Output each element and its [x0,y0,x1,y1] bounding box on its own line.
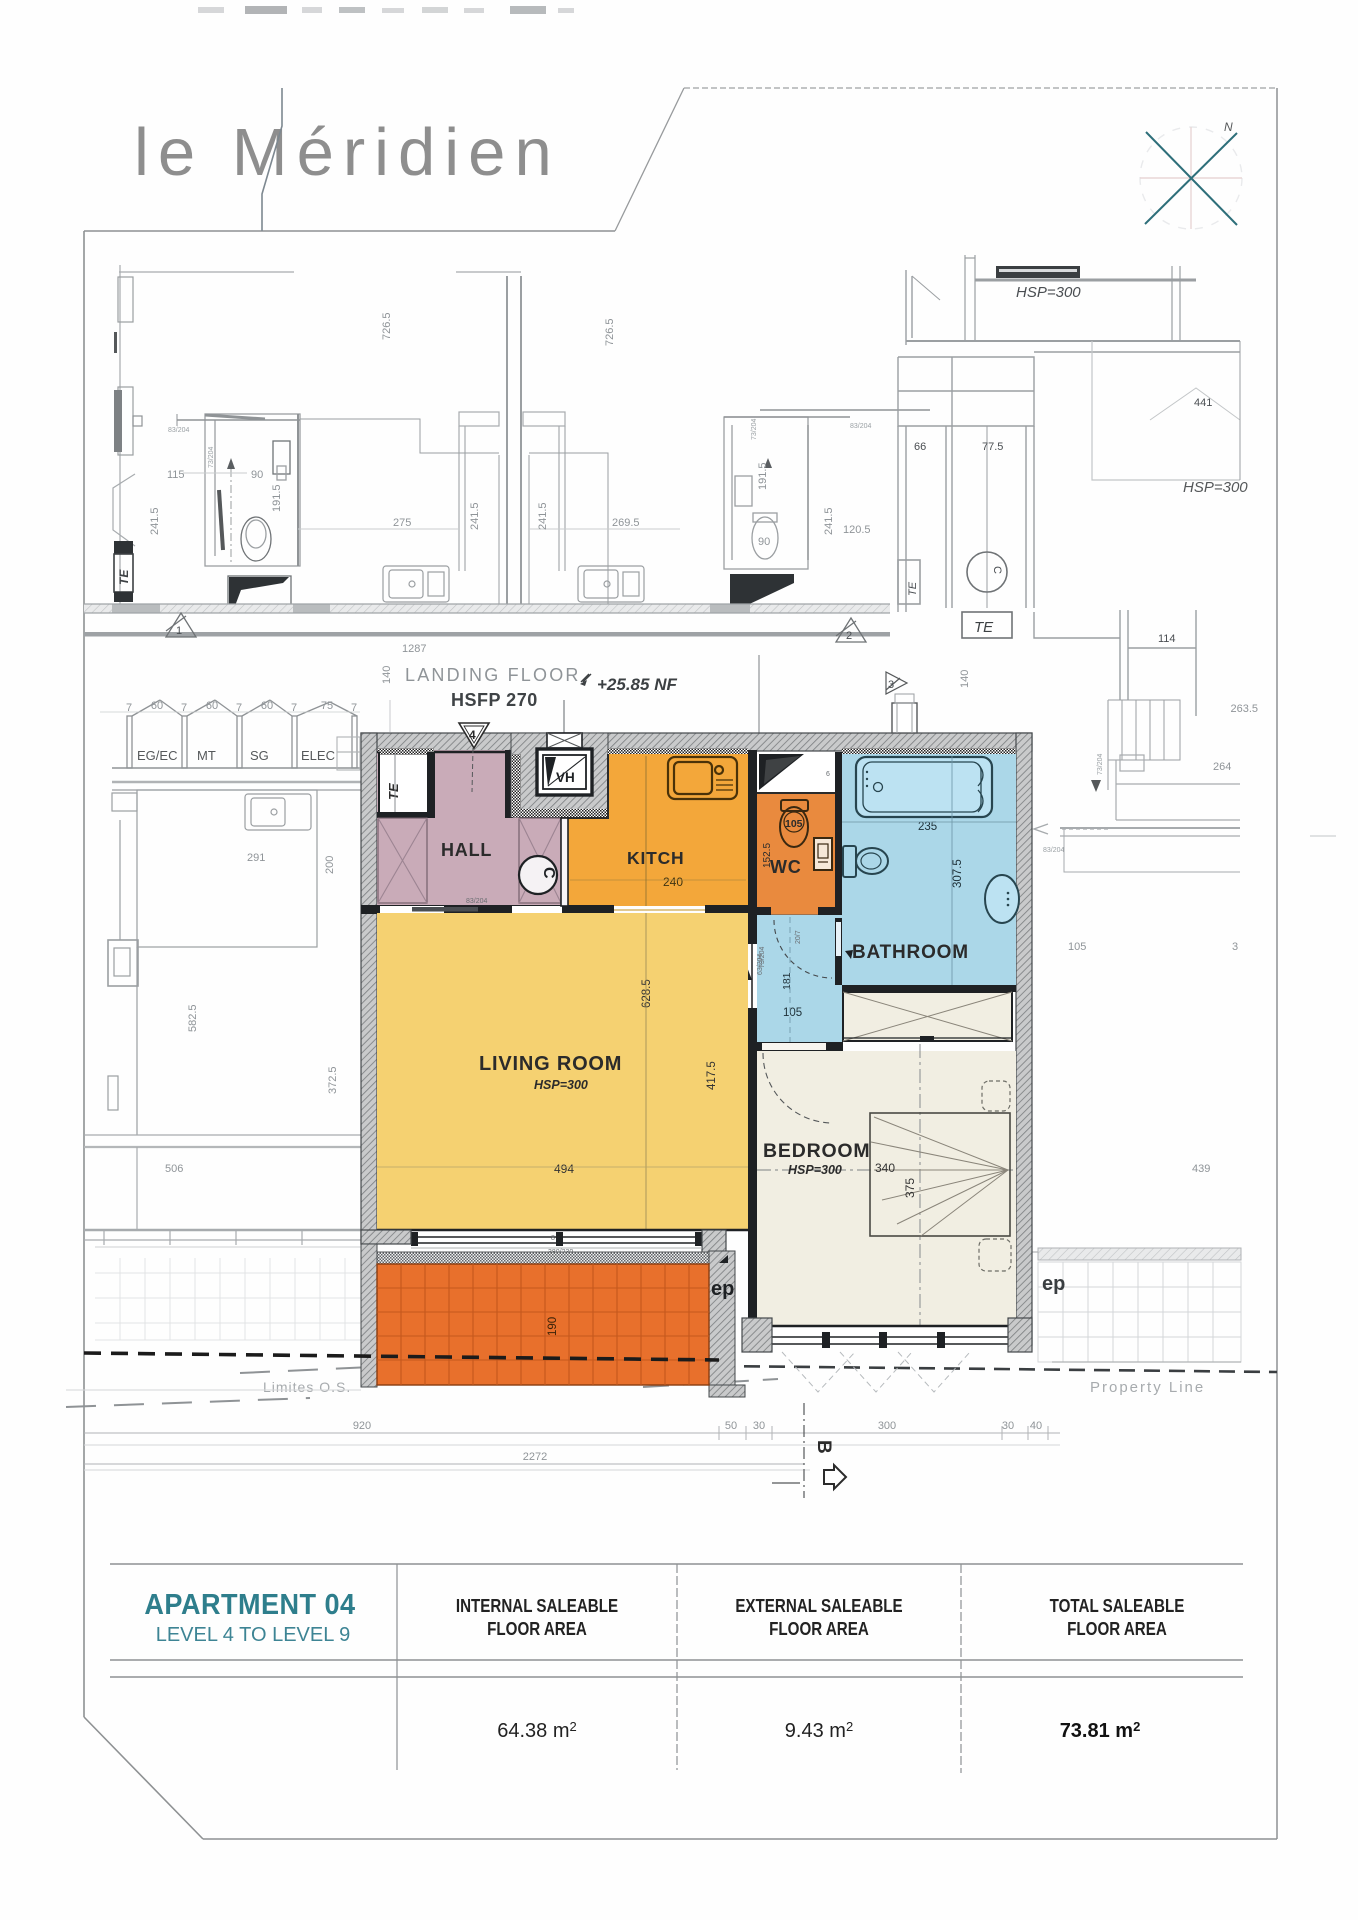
svg-text:181: 181 [781,972,793,990]
svg-text:HSFP 270: HSFP 270 [451,690,538,710]
svg-text:ep: ep [1042,1273,1065,1295]
svg-text:HALL: HALL [441,840,492,860]
svg-text:506: 506 [165,1163,183,1175]
svg-text:TE: TE [974,619,994,636]
svg-text:TE: TE [386,783,401,800]
svg-text:83/204: 83/204 [168,427,190,434]
svg-text:140: 140 [959,670,971,688]
svg-text:N: N [1224,120,1233,134]
svg-text:20/7: 20/7 [795,930,802,944]
svg-text:191.5: 191.5 [757,462,769,490]
svg-text:TE: TE [907,581,919,596]
svg-text:73/204: 73/204 [1097,753,1104,775]
svg-text:140: 140 [381,666,393,684]
svg-text:Limites O.S.: Limites O.S. [263,1379,351,1395]
svg-text:264: 264 [1213,761,1231,773]
svg-text:77.5: 77.5 [982,441,1003,453]
svg-text:235: 235 [918,821,937,833]
svg-text:75: 75 [321,700,333,712]
svg-text:LANDING FLOOR: LANDING FLOOR [405,665,581,685]
svg-text:340: 340 [875,1161,895,1175]
svg-text:83/204: 83/204 [466,898,488,905]
svg-text:300: 300 [878,1420,896,1432]
svg-text:4: 4 [469,728,476,742]
svg-text:BEDROOM: BEDROOM [763,1140,870,1162]
svg-text:le Méridien: le Méridien [134,115,561,190]
svg-text:C: C [991,566,1003,574]
svg-text:50: 50 [725,1420,737,1432]
svg-text:105: 105 [1068,941,1086,953]
svg-text:90: 90 [758,536,770,548]
svg-text:372.5: 372.5 [327,1066,339,1094]
svg-text:LIVING ROOM: LIVING ROOM [479,1053,622,1075]
svg-text:ELEC: ELEC [301,748,335,763]
svg-text:105: 105 [783,1007,802,1019]
svg-text:307.5: 307.5 [952,859,964,888]
svg-text:TOTAL SALEABLE: TOTAL SALEABLE [1050,1596,1185,1617]
svg-text:375: 375 [903,1178,917,1198]
svg-text:FLOOR AREA: FLOOR AREA [1067,1619,1167,1640]
svg-text:40: 40 [1030,1420,1042,1432]
svg-text:60: 60 [261,700,273,712]
svg-text:726.5: 726.5 [604,318,616,346]
svg-text:FLOOR AREA: FLOOR AREA [769,1619,869,1640]
svg-text:KITCH: KITCH [627,848,684,868]
svg-text:ep: ep [711,1278,734,1300]
svg-text:LEVEL 4 TO LEVEL 9: LEVEL 4 TO LEVEL 9 [156,1624,351,1646]
svg-text:275: 275 [393,517,411,529]
svg-text:582.5: 582.5 [187,1004,199,1032]
svg-text:73/204: 73/204 [208,446,215,468]
svg-text:114: 114 [1158,633,1176,645]
svg-text:73/204: 73/204 [751,418,758,440]
svg-text:HSP=300: HSP=300 [1183,479,1248,496]
svg-text:60: 60 [206,700,218,712]
svg-text:MT: MT [197,748,216,763]
svg-text:105: 105 [785,818,803,830]
svg-text:291: 291 [247,852,265,864]
svg-text:EG/EC: EG/EC [137,748,177,763]
svg-text:9.43 m2: 9.43 m2 [785,1719,853,1742]
svg-text:Property Line: Property Line [1090,1379,1205,1396]
svg-text:263.5: 263.5 [1230,703,1258,715]
svg-text:73.81 m2: 73.81 m2 [1060,1719,1141,1742]
svg-text:FLOOR AREA: FLOOR AREA [487,1619,587,1640]
svg-text:C: C [540,867,557,879]
svg-text:63/204: 63/204 [757,953,764,975]
svg-text:90: 90 [251,469,263,481]
svg-text:191.5: 191.5 [271,484,283,512]
svg-text:269.5: 269.5 [612,517,640,529]
svg-text:3: 3 [1232,941,1238,953]
svg-text:BATHROOM: BATHROOM [852,942,969,963]
svg-text:628.5: 628.5 [641,979,653,1008]
svg-text:920: 920 [353,1420,371,1432]
svg-text:241.5: 241.5 [823,507,835,535]
svg-text:HSP=300: HSP=300 [1016,284,1081,301]
svg-text:240: 240 [663,875,683,889]
svg-text:B: B [813,1440,834,1454]
svg-text:1287: 1287 [402,643,426,655]
svg-text:120.5: 120.5 [843,524,871,536]
svg-text:INTERNAL SALEABLE: INTERNAL SALEABLE [456,1596,618,1617]
svg-text:1: 1 [176,625,182,637]
svg-text:60: 60 [151,700,163,712]
svg-text:VH: VH [556,770,575,785]
svg-text:2272: 2272 [523,1451,547,1463]
svg-text:241.5: 241.5 [537,502,549,530]
svg-text:439: 439 [1192,1163,1210,1175]
svg-text:HSP=300: HSP=300 [788,1163,842,1177]
svg-text:+25.85 NF: +25.85 NF [597,675,677,694]
svg-text:241.5: 241.5 [149,507,161,535]
svg-text:726.5: 726.5 [381,312,393,340]
svg-text:83/204: 83/204 [1043,847,1065,854]
svg-text:200: 200 [324,856,336,874]
svg-text:115: 115 [167,469,185,481]
svg-text:APARTMENT 04: APARTMENT 04 [144,1588,355,1620]
svg-text:TE: TE [117,569,131,585]
svg-text:SG: SG [250,748,269,763]
svg-text:152.5: 152.5 [762,843,773,868]
svg-text:6: 6 [826,771,830,778]
svg-text:66: 66 [914,441,926,453]
svg-text:EXTERNAL SALEABLE: EXTERNAL SALEABLE [735,1596,902,1617]
svg-text:83/204: 83/204 [850,423,872,430]
svg-text:494: 494 [554,1162,574,1176]
svg-text:190: 190 [547,1317,559,1336]
svg-text:241.5: 241.5 [469,502,481,530]
svg-text:30: 30 [1002,1420,1014,1432]
svg-text:441: 441 [1194,397,1212,409]
svg-text:30: 30 [753,1420,765,1432]
svg-text:8: 8 [551,1235,555,1242]
svg-text:2: 2 [846,630,852,642]
svg-text:417.5: 417.5 [706,1061,718,1090]
svg-text:WC: WC [770,857,802,877]
svg-text:HSP=300: HSP=300 [534,1078,588,1092]
svg-text:64.38 m2: 64.38 m2 [497,1719,577,1742]
svg-text:3: 3 [888,679,894,691]
